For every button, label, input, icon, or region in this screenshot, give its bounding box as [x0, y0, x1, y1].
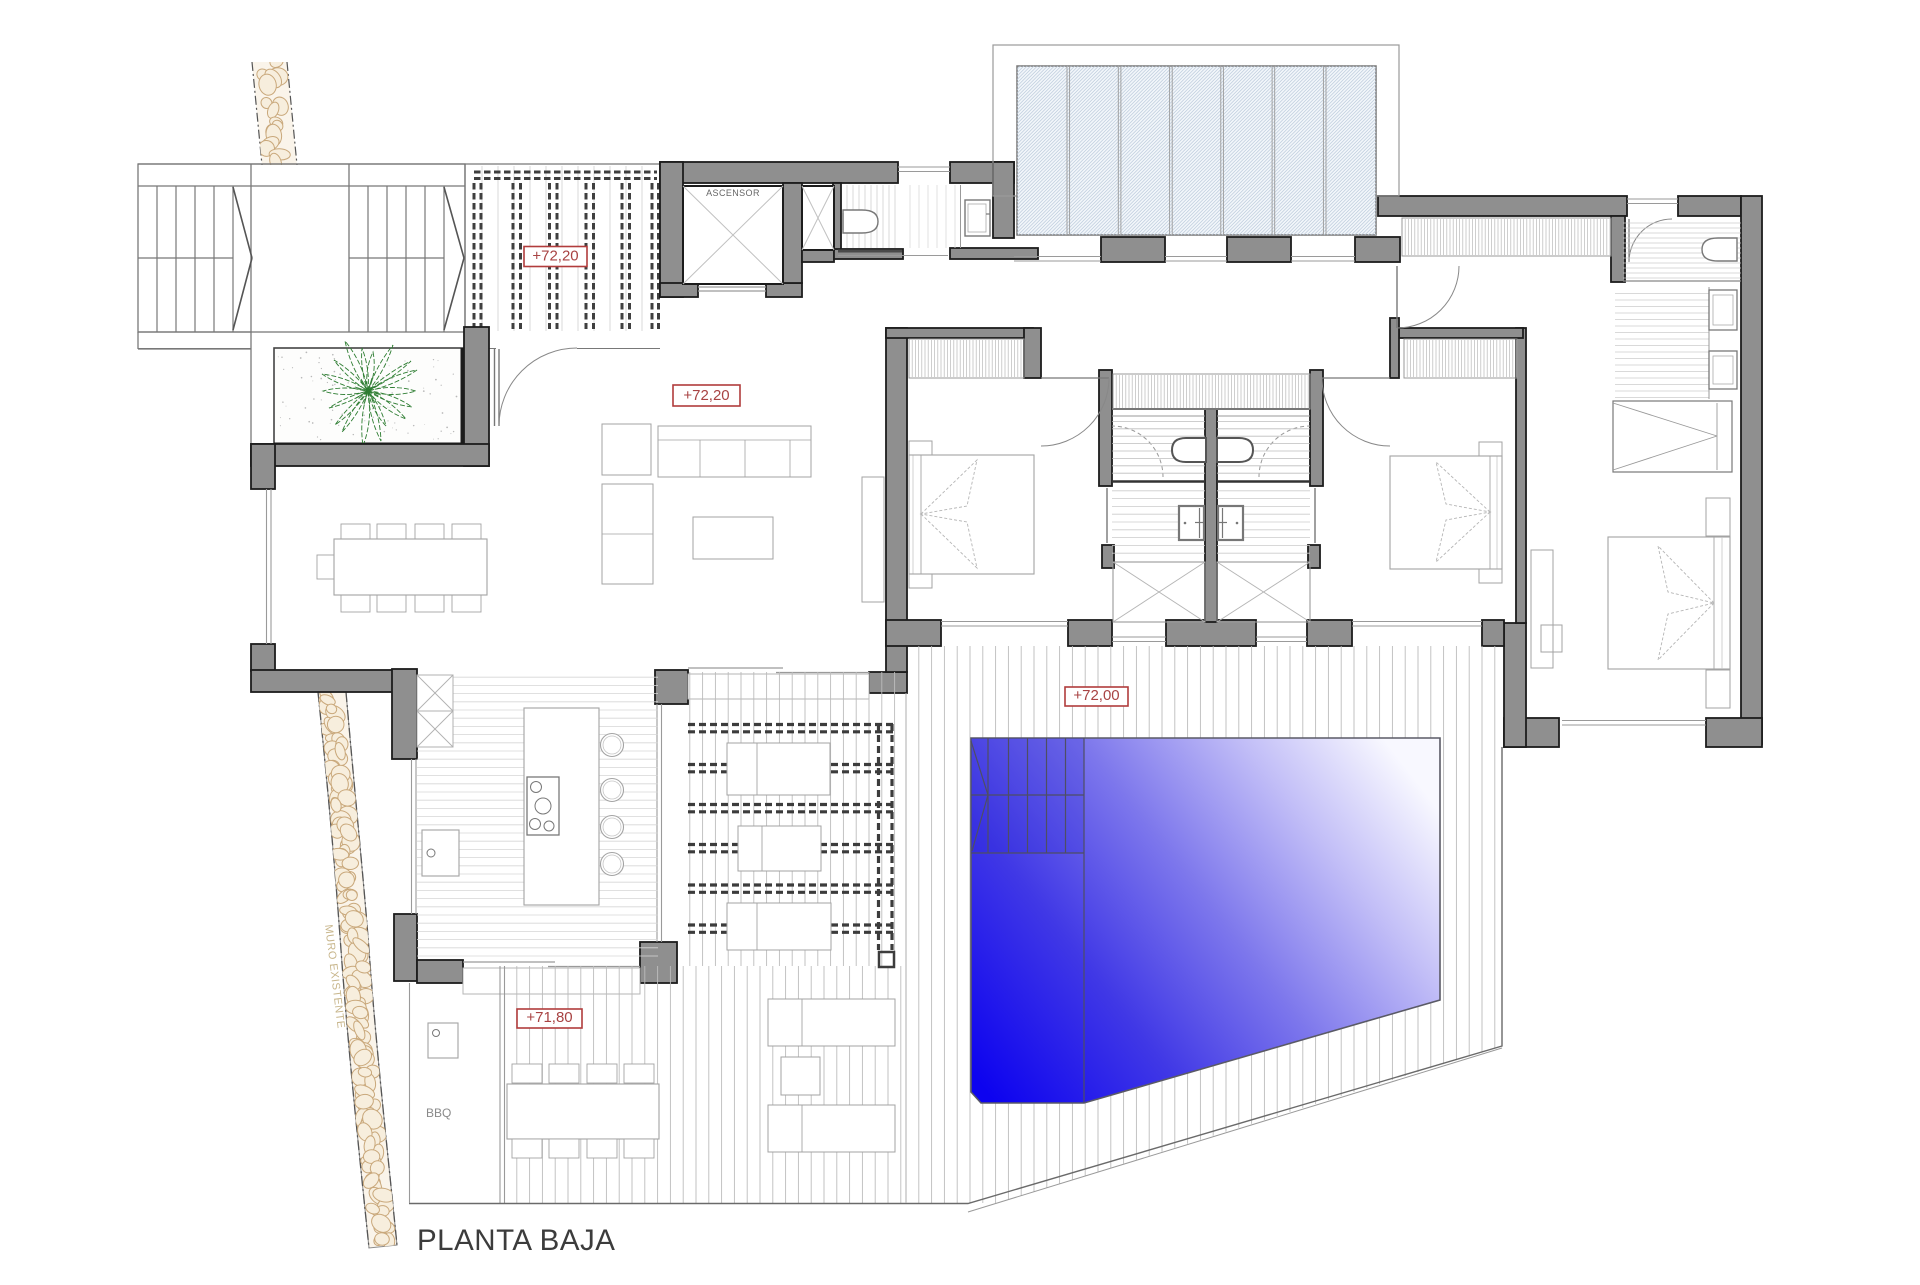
svg-text:+72,20: +72,20	[532, 248, 578, 265]
svg-text:ASCENSOR: ASCENSOR	[706, 188, 760, 198]
svg-text:+72,00: +72,00	[1073, 687, 1119, 704]
svg-text:+71,80: +71,80	[526, 1009, 572, 1026]
svg-text:+72,20: +72,20	[683, 387, 729, 404]
svg-text:BBQ: BBQ	[426, 1106, 451, 1120]
svg-text:PLANTA BAJA: PLANTA BAJA	[417, 1224, 615, 1257]
